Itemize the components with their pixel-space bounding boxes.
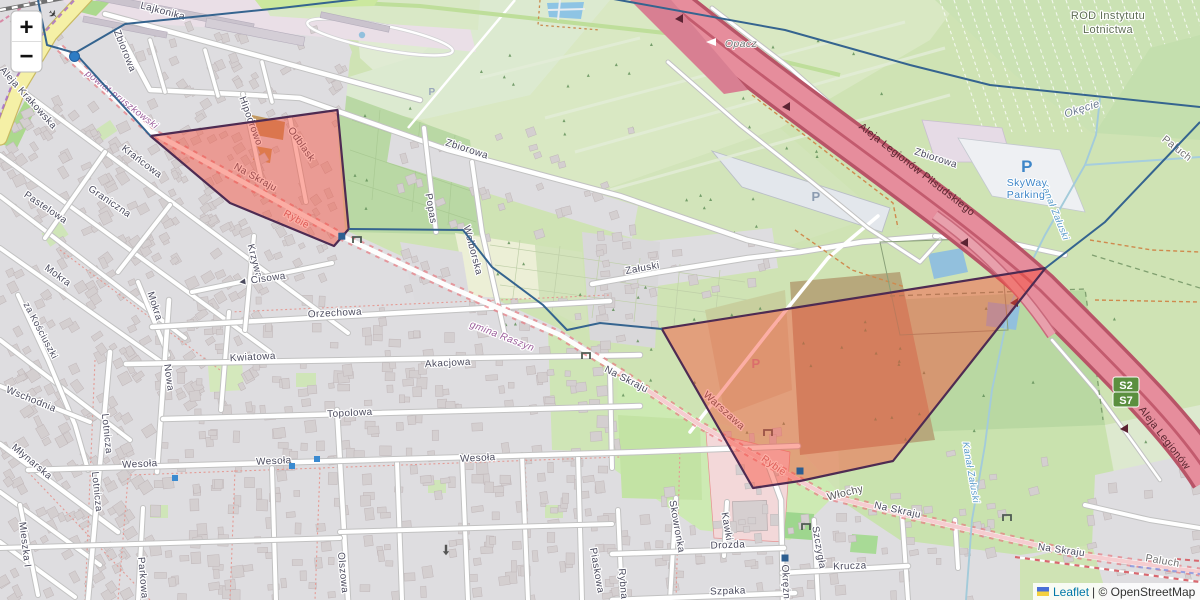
svg-text:SkyWay: SkyWay: [1007, 177, 1048, 189]
svg-text:+: +: [19, 14, 33, 41]
svg-text:Wesoła: Wesoła: [122, 458, 158, 471]
svg-text:P: P: [428, 87, 435, 98]
svg-text:Lotnictwa: Lotnictwa: [1083, 24, 1134, 36]
svg-text:Krucza: Krucza: [833, 560, 867, 572]
svg-text:Leaflet: Leaflet: [1053, 585, 1090, 599]
svg-text:Opacz: Opacz: [725, 38, 758, 50]
svg-text:P: P: [811, 189, 820, 204]
svg-text:Szpaka: Szpaka: [710, 585, 746, 597]
svg-text:S2: S2: [1119, 380, 1132, 392]
svg-text:Parking: Parking: [1007, 189, 1045, 201]
svg-text:Wesoła: Wesoła: [460, 452, 496, 465]
svg-text:−: −: [19, 43, 33, 70]
svg-text:Wesoła: Wesoła: [256, 455, 292, 468]
svg-text:Okrężna: Okrężna: [779, 564, 792, 600]
svg-text:P: P: [1021, 157, 1033, 176]
svg-text:ROD Instytutu: ROD Instytutu: [1071, 10, 1145, 22]
svg-text:Drozda: Drozda: [710, 539, 745, 551]
svg-text:| © OpenStreetMap: | © OpenStreetMap: [1092, 585, 1196, 599]
svg-text:S7: S7: [1119, 395, 1132, 407]
